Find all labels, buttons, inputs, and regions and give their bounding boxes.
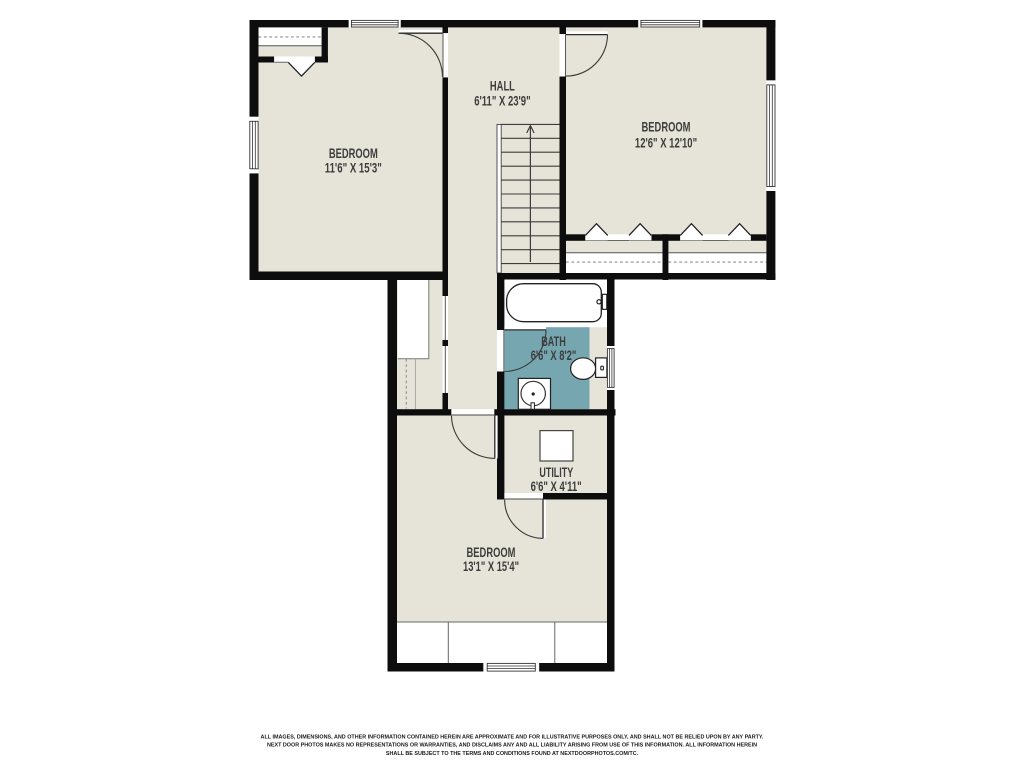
svg-text:12'6" X 12'10": 12'6" X 12'10" <box>635 136 697 151</box>
svg-text:SHALL BE SUBJECT TO THE TERMS: SHALL BE SUBJECT TO THE TERMS AND CONDIT… <box>386 751 639 757</box>
svg-text:11'6" X 15'3": 11'6" X 15'3" <box>325 161 382 176</box>
svg-text:BEDROOM: BEDROOM <box>642 121 691 135</box>
svg-text:BATH: BATH <box>541 336 566 350</box>
svg-text:NEXT DOOR PHOTOS MAKES NO REPR: NEXT DOOR PHOTOS MAKES NO REPRESENTATION… <box>267 743 757 749</box>
svg-text:ALL IMAGES, DIMENSIONS, AND OT: ALL IMAGES, DIMENSIONS, AND OTHER INFORM… <box>261 734 764 740</box>
svg-text:BEDROOM: BEDROOM <box>467 547 516 561</box>
svg-text:UTILITY: UTILITY <box>539 466 573 480</box>
svg-text:6'6" X 4'11": 6'6" X 4'11" <box>531 480 582 495</box>
svg-text:13'1" X 15'4": 13'1" X 15'4" <box>463 561 519 575</box>
svg-text:HALL: HALL <box>490 80 515 94</box>
svg-text:6'11" X 23'9": 6'11" X 23'9" <box>474 94 530 109</box>
svg-text:6'6" X 8'2": 6'6" X 8'2" <box>531 350 577 364</box>
svg-text:BEDROOM: BEDROOM <box>329 147 378 161</box>
